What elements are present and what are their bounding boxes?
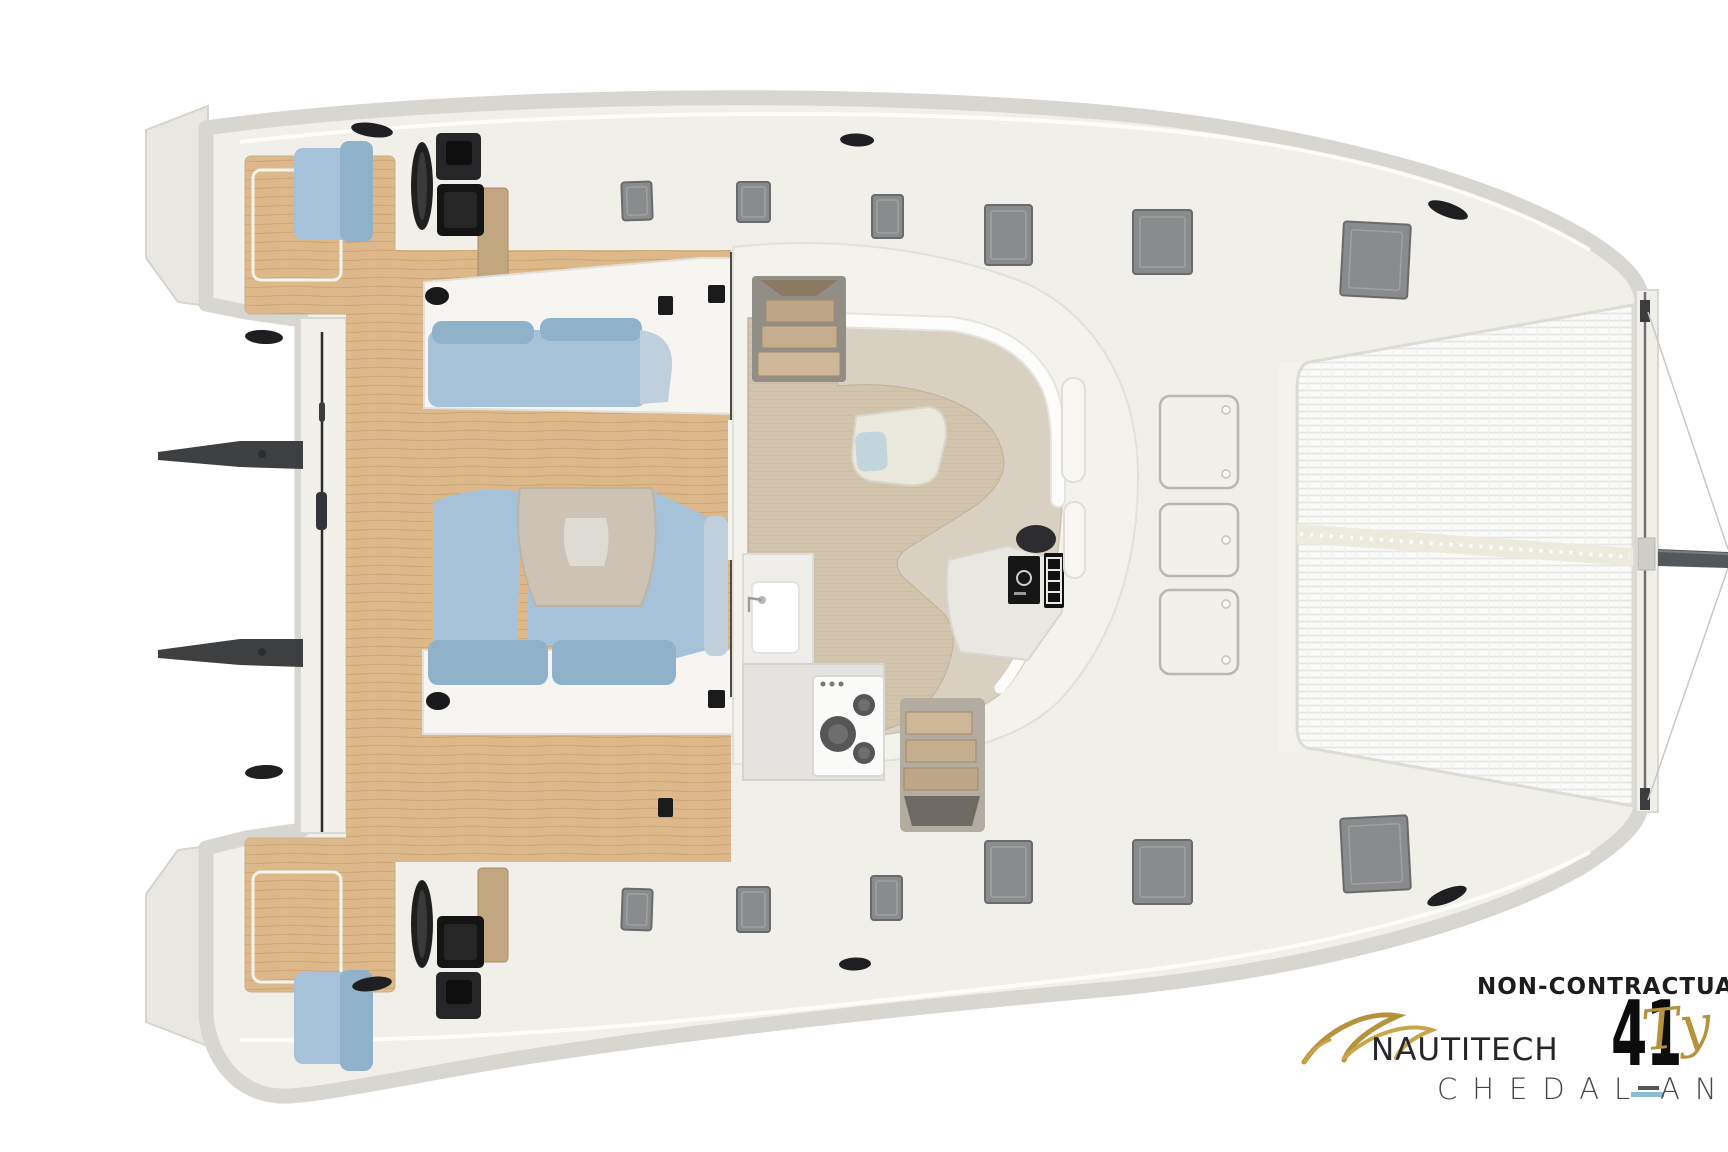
bulkhead-fitting [708,285,725,303]
deck-hatch [1133,210,1192,274]
foredeck-locker [1160,504,1238,576]
bow-area [1279,290,1728,812]
cockpit-forward-bench [424,258,736,414]
cleat [245,764,284,780]
deck-hatch [871,876,902,920]
deck-hatch [621,888,652,930]
dinghy-davits [158,441,303,667]
foredeck-locker [1160,590,1238,674]
deck-hatch [1340,815,1411,892]
deck-hatch [985,205,1032,265]
roof-handrail [1064,502,1085,578]
stove [813,676,884,776]
deck-hatch [1133,840,1192,904]
port-hull-steps [752,276,846,382]
nav-stool [1016,525,1056,553]
catamaran-deck-plan [0,0,1728,1152]
cleat [245,329,284,345]
sink [752,582,799,653]
saloon-table [852,407,946,485]
deck-hatch [737,887,770,932]
bulkhead-fitting [658,296,673,315]
deck-plan-render: NON-CONTRACTUAL NAUTITECH 41 Ty CHEDAL A… [0,0,1728,1152]
forward-crossbeam [1636,290,1658,812]
bulkhead-fitting [658,798,673,817]
instrument-panel [1008,556,1040,604]
deck-fitting [425,287,449,305]
starboard-hull-steps [900,698,985,832]
deck-fitting [426,692,450,710]
deck-hatch [985,841,1032,903]
deck-hatch [872,195,903,238]
cockpit-table [518,488,656,606]
aft-walkway [300,318,346,833]
roof-handrail [1062,378,1085,482]
port-transom-bench [294,141,373,242]
deck-hatch [737,182,770,222]
deck-hatch [1340,221,1411,298]
deck-hatch [621,181,652,220]
bulkhead-fitting [708,690,725,708]
foredeck-lockers [1160,396,1238,674]
foredeck-locker [1160,396,1238,488]
